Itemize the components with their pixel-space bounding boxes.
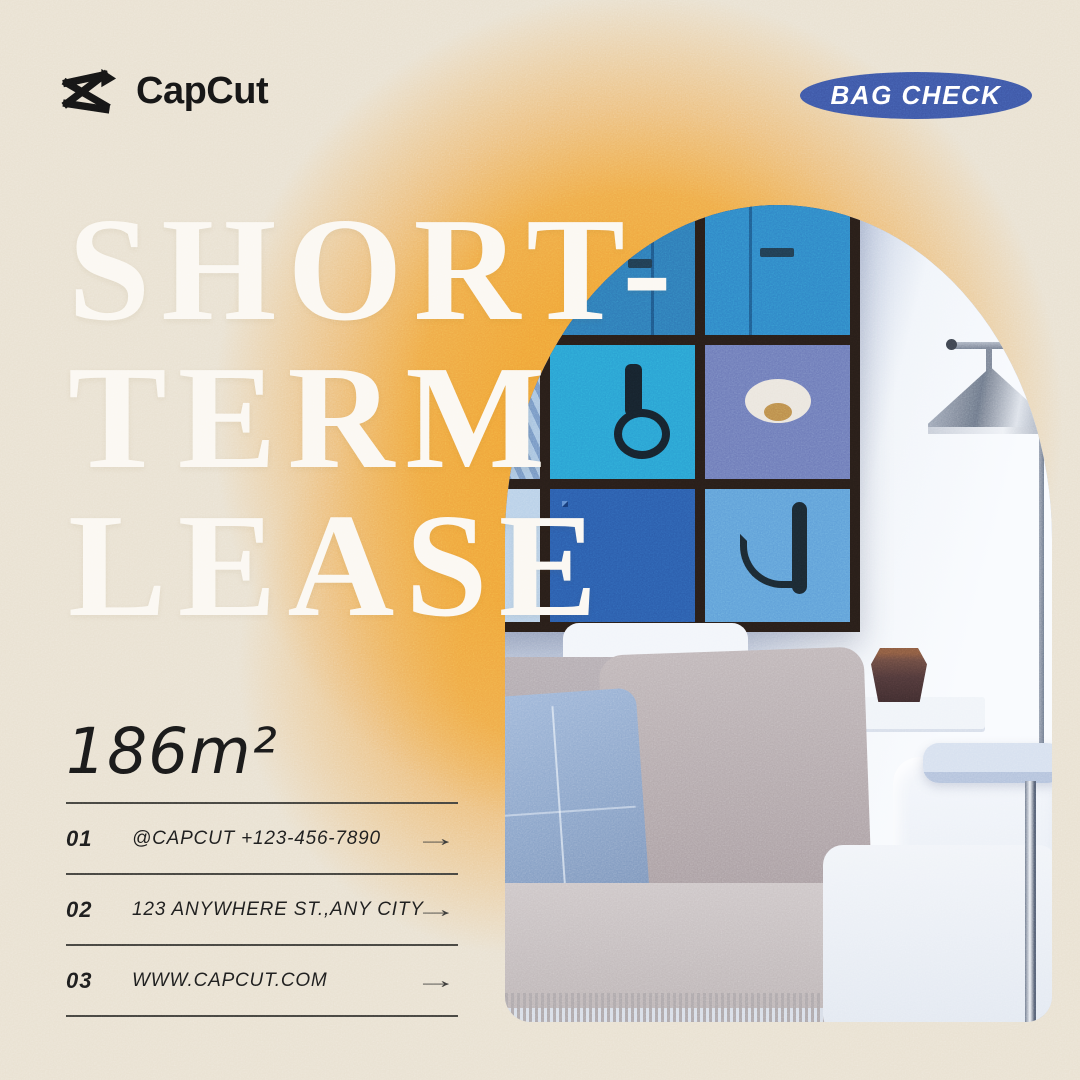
contact-row: 02 123 ANYWHERE ST.,ANY CITY → [66, 875, 458, 946]
row-label: WWW.CAPCUT.COM [132, 970, 432, 992]
row-number: 03 [66, 968, 132, 994]
badge-label: BAG CHECK [831, 80, 1002, 111]
row-label: 123 ANYWHERE ST.,ANY CITY [132, 899, 432, 921]
bag-check-badge: BAG CHECK [800, 72, 1032, 119]
brown-vase [871, 648, 927, 702]
blue-pillow [505, 687, 650, 913]
arrow-right-icon: → [409, 825, 458, 852]
door-handle-hook [740, 534, 800, 588]
brand-name: CapCut [136, 70, 268, 113]
door-cell-periwinkle [705, 345, 850, 479]
headline-line-1: SHORT- [68, 196, 683, 344]
blue-side-table [923, 743, 1052, 783]
row-label: @CAPCUT +123-456-7890 [132, 828, 432, 850]
door-oval-brass [764, 403, 792, 421]
capcut-logo-icon [60, 66, 122, 116]
door-seam [749, 205, 752, 335]
floor-lamp-neck [986, 347, 992, 371]
contact-list: 01 @CAPCUT +123-456-7890 → 02 123 ANYWHE… [66, 802, 458, 1017]
poster-canvas: CapCut BAG CHECK SHORT- TERM LEASE 186m²… [0, 0, 1080, 1080]
headline: SHORT- TERM LEASE [68, 196, 683, 640]
floor-lamp-arm-tip [946, 339, 957, 350]
headline-line-2: TERM [68, 344, 683, 492]
sofa-seat-right [823, 845, 1052, 1022]
side-table-chrome-leg [1025, 781, 1036, 1022]
info-block: 186m² 01 @CAPCUT +123-456-7890 → 02 123 … [66, 714, 458, 1017]
row-number: 01 [66, 826, 132, 852]
arrow-right-icon: → [409, 896, 458, 923]
contact-row: 01 @CAPCUT +123-456-7890 → [66, 804, 458, 875]
capcut-logo: CapCut [60, 66, 268, 116]
headline-line-3: LEASE [68, 492, 683, 640]
row-number: 02 [66, 897, 132, 923]
area-value: 186m² [66, 714, 458, 790]
contact-row: 03 WWW.CAPCUT.COM → [66, 946, 458, 1017]
floor-lamp-shade-rim [928, 427, 1052, 434]
door-cell-bright-blue [705, 205, 850, 335]
arrow-right-icon: → [409, 967, 458, 994]
door-cell-handle [705, 489, 850, 622]
door-handle [760, 248, 794, 257]
